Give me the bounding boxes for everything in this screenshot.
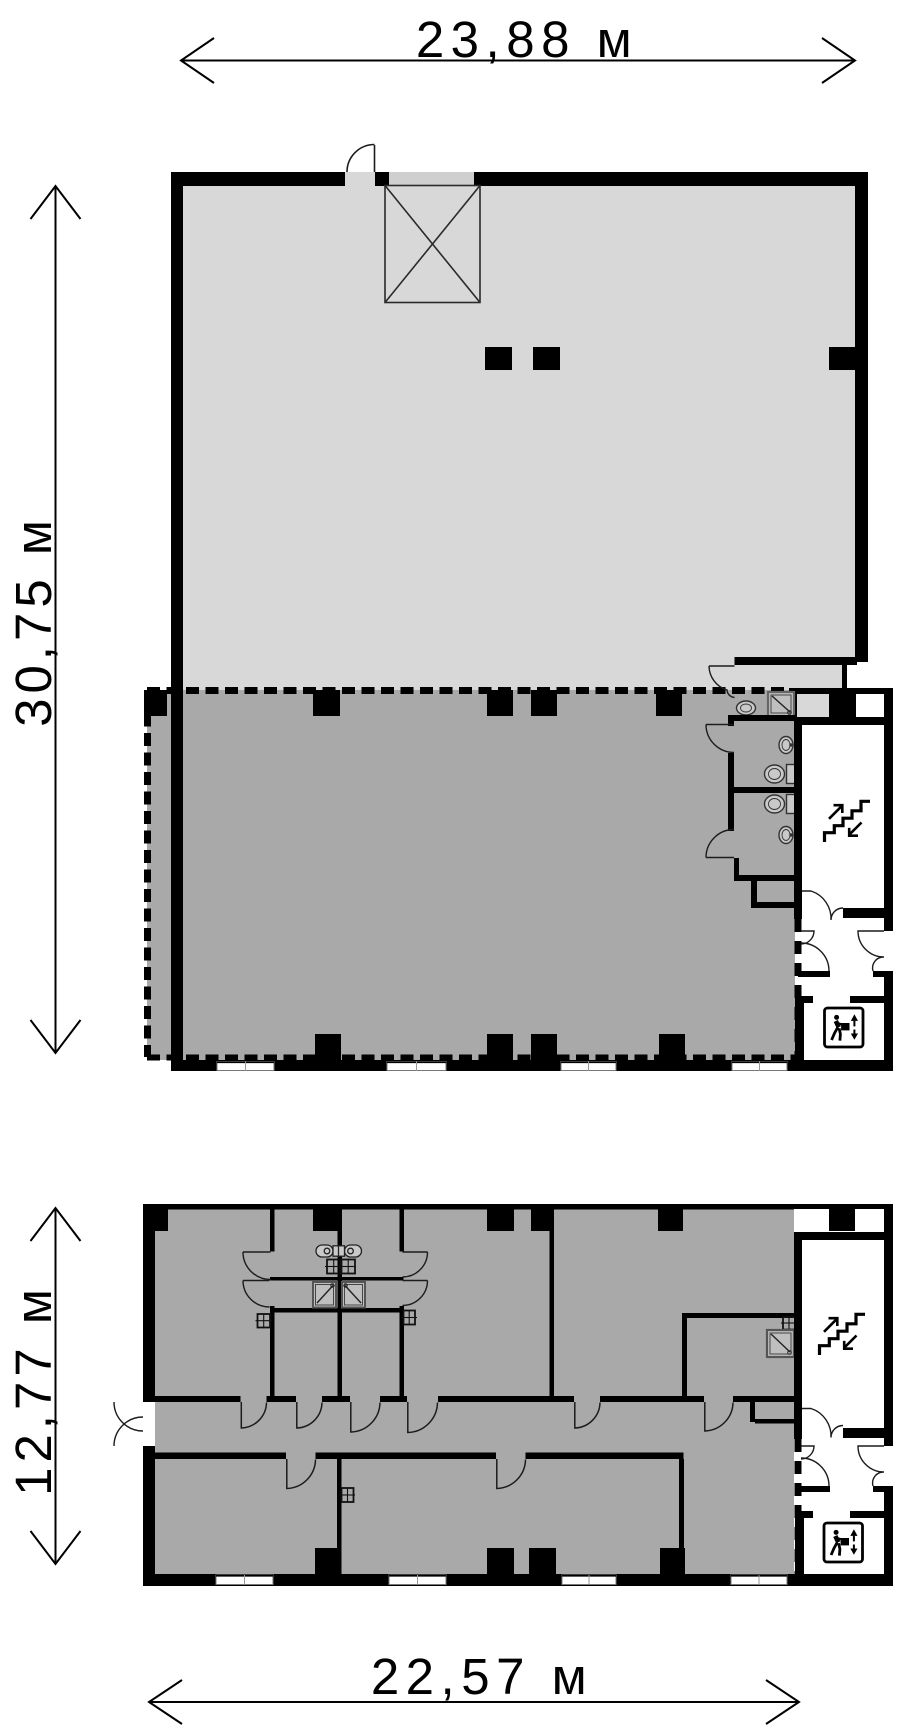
svg-text:12,77 м: 12,77 м: [5, 1284, 62, 1496]
svg-text:30,75 м: 30,75 м: [5, 515, 62, 727]
svg-text:22,57 м: 22,57 м: [371, 1648, 593, 1705]
svg-text:23,88 м: 23,88 м: [416, 11, 638, 68]
